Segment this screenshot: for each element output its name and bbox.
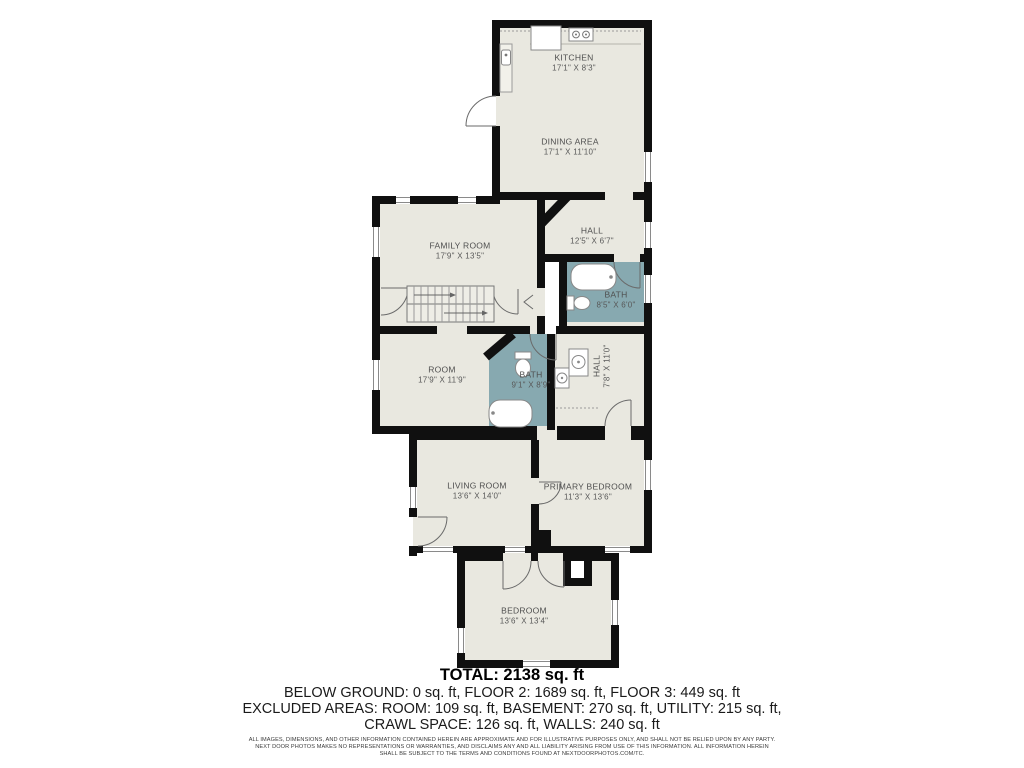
- legal-disclaimer: ALL IMAGES, DIMENSIONS, AND OTHER INFORM…: [0, 737, 1024, 758]
- window: [605, 546, 630, 553]
- room-label-bath-lower: BATH 9'1" X 8'9": [511, 370, 550, 391]
- excluded-areas-line: EXCLUDED AREAS: ROOM: 109 sq. ft, BASEME…: [0, 701, 1024, 717]
- room-label-hall-upper: HALL 12'5" X 6'7": [570, 226, 614, 247]
- room-label-family-room: FAMILY ROOM 17'9" X 13'5": [429, 241, 490, 262]
- stairs: [407, 286, 494, 322]
- disclaimer-line: ALL IMAGES, DIMENSIONS, AND OTHER INFORM…: [0, 737, 1024, 744]
- window: [372, 227, 380, 257]
- window: [457, 628, 465, 653]
- room-name: HALL: [592, 344, 603, 387]
- kitchen-sink-icon: [500, 44, 512, 92]
- room-dims: 17'1" X 8'3": [552, 63, 596, 74]
- disclaimer-line: SHALL BE SUBJECT TO THE TERMS AND CONDIT…: [0, 751, 1024, 758]
- room-name: PRIMARY BEDROOM: [544, 482, 632, 493]
- room-name: BATH: [596, 290, 635, 301]
- disclaimer-line: NEXT DOOR PHOTOS MAKES NO REPRESENTATION…: [0, 744, 1024, 751]
- room-name: HALL: [570, 226, 614, 237]
- room-label-hall-lower: HALL 7'8" X 11'0": [592, 344, 613, 387]
- stove-icon: [569, 28, 593, 41]
- area-summary: TOTAL: 2138 sq. ft BELOW GROUND: 0 sq. f…: [0, 666, 1024, 758]
- dryer-icon: [555, 368, 569, 388]
- window: [409, 487, 417, 508]
- room-label-bath-upper: BATH 8'5" X 6'0": [596, 290, 635, 311]
- total-area: TOTAL: 2138 sq. ft: [0, 666, 1024, 685]
- window: [644, 275, 652, 303]
- excluded-areas-line2: CRAWL SPACE: 126 sq. ft, WALLS: 240 sq. …: [0, 717, 1024, 733]
- room-name: LIVING ROOM: [447, 481, 506, 492]
- window: [396, 196, 410, 204]
- room-name: BATH: [511, 370, 550, 381]
- room-dims: 17'1" X 11'10": [541, 147, 599, 158]
- floors-area-line: BELOW GROUND: 0 sq. ft, FLOOR 2: 1689 sq…: [0, 685, 1024, 701]
- room-name: KITCHEN: [552, 53, 596, 64]
- room-dims: 11'3" X 13'6": [544, 492, 632, 503]
- washer-icon: [569, 349, 588, 376]
- window: [372, 360, 380, 390]
- window: [644, 152, 652, 182]
- door-arc: [466, 96, 496, 126]
- window: [505, 546, 525, 553]
- room-dims: 13'6" X 14'0": [447, 491, 506, 502]
- window: [611, 600, 619, 625]
- room-name: DINING AREA: [541, 137, 599, 148]
- window: [423, 546, 453, 553]
- room-name: FAMILY ROOM: [429, 241, 490, 252]
- room-dims: 13'6" X 13'4": [500, 616, 548, 627]
- room-label-living-room: LIVING ROOM 13'6" X 14'0": [447, 481, 506, 502]
- room-dims: 17'9" X 11'9": [418, 375, 466, 386]
- room-label-bedroom: BEDROOM 13'6" X 13'4": [500, 606, 548, 627]
- room-label-room: ROOM 17'9" X 11'9": [418, 365, 466, 386]
- room-dims: 9'1" X 8'9": [511, 380, 550, 391]
- room-name: BEDROOM: [500, 606, 548, 617]
- window: [644, 222, 652, 248]
- room-label-kitchen: KITCHEN 17'1" X 8'3": [552, 53, 596, 74]
- room-label-dining-area: DINING AREA 17'1" X 11'10": [541, 137, 599, 158]
- window: [644, 460, 652, 490]
- toilet-icon: [567, 296, 590, 310]
- window: [458, 196, 476, 204]
- room-dims: 17'9" X 13'5": [429, 251, 490, 262]
- room-dims: 12'5" X 6'7": [570, 236, 614, 247]
- refrigerator-icon: [531, 26, 561, 50]
- floor-plan-page: KITCHEN 17'1" X 8'3" DINING AREA 17'1" X…: [0, 0, 1024, 768]
- room-dims: 8'5" X 6'0": [596, 300, 635, 311]
- bathtub-icon: [489, 400, 532, 427]
- room-dims: 7'8" X 11'0": [602, 344, 613, 387]
- room-label-primary-bedroom: PRIMARY BEDROOM 11'3" X 13'6": [544, 482, 632, 503]
- room-name: ROOM: [418, 365, 466, 376]
